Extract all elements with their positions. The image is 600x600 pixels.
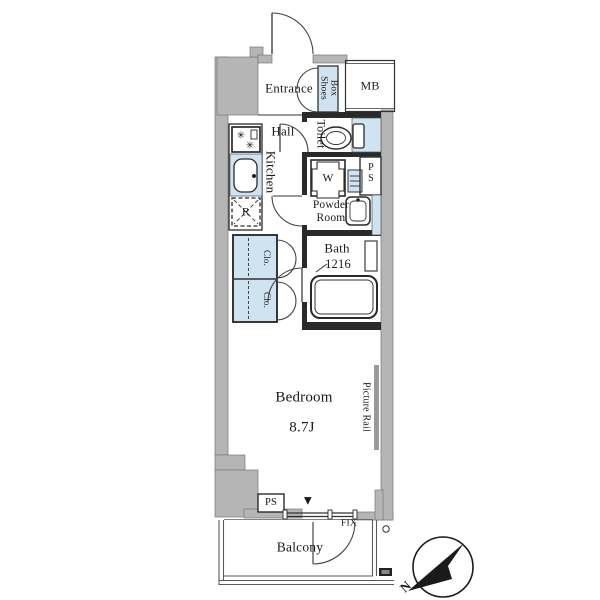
balcony-drain-inner [382,570,390,574]
closet-door-arc-lower [277,282,296,320]
stove-burner-icon-2: ✳ [246,140,255,151]
wall-toilet-top [302,112,381,118]
wall-toilet-bottom [307,152,381,157]
label-washer: W [322,173,333,186]
wall-right [381,110,393,520]
label-bath-size: 1216 [325,257,351,271]
label-powder-room: Powder Room [313,199,349,225]
label-shoes-box-2: Box [328,80,339,96]
floor-plan: Entrance Shoes Box MB Hall Kitchen Toile… [0,0,600,600]
stove-grill [251,130,257,139]
label-closet-lower: Clo. [262,292,272,308]
powder-counter-strip [372,195,381,235]
wall-corridor-stub [302,112,307,122]
label-ps-lower: PS [265,497,277,509]
bath-counter [365,241,377,271]
label-balcony: Balcony [277,539,323,554]
wall-left [215,57,228,455]
balcony-post-icon [383,526,389,532]
wall-bedroom-top [302,322,381,330]
bathtub-icon [311,276,377,318]
window-cap-right [353,510,357,519]
toilet-tank-icon [353,124,364,148]
wall-right-stub [375,490,383,520]
picture-rail-bar [374,365,379,450]
window-cap-left [283,510,287,519]
label-bath: Bath [324,242,349,257]
wall-top-seg-left [258,55,272,63]
wall-left-step1 [215,455,245,470]
wall-top-seg-right [313,55,347,63]
compass-needle-icon [408,543,464,591]
wall-corridor-mid [302,152,307,195]
label-bedroom-size: 8.7J [289,420,314,437]
label-picture-rail: Picture Rail [360,382,371,432]
label-bedroom: Bedroom [275,390,332,407]
closet-door-arc-upper [277,240,296,278]
label-kitchen: Kitchen [263,151,278,194]
sink-faucet-icon [252,174,256,178]
powder-faucet-icon [356,198,360,202]
window-cap-mid [328,510,332,519]
label-ps-upper: P S [368,162,374,184]
label-refrigerator: R [242,205,250,218]
label-hall: Hall [271,125,294,140]
window-marker-icon: ▼ [304,495,312,506]
label-closet-upper: Clo. [262,250,272,266]
label-toilet: Toilet [314,119,327,148]
label-fix: FIX [341,519,357,530]
entrance-door-arc [272,13,313,54]
stove-burner-icon-1: ✳ [237,130,246,141]
powder-door-arc [272,196,302,226]
wall-top-left-block [217,57,258,115]
wall-corridor-lower [302,225,307,268]
label-entrance: Entrance [265,82,313,97]
label-mb: MB [360,79,379,92]
wall-powder-bottom [307,230,381,236]
